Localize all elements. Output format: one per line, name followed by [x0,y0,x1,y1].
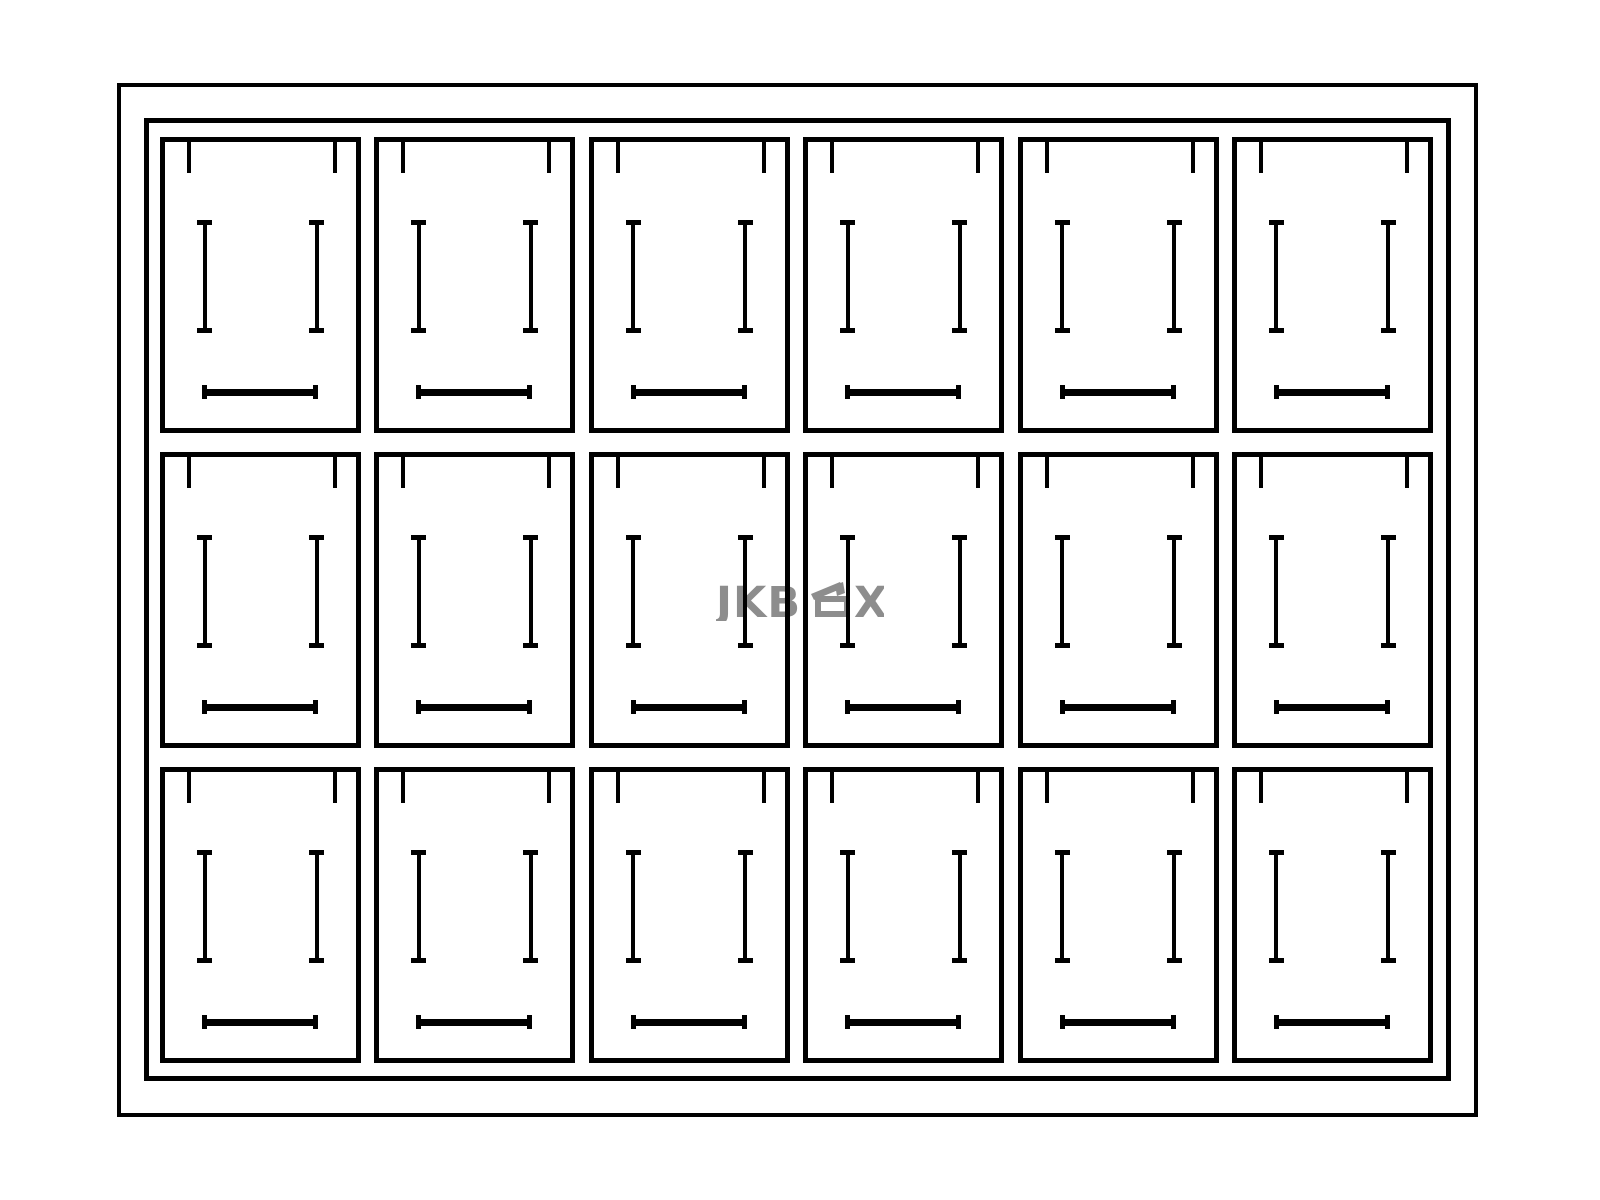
vertical-pin-left-icon [840,850,855,963]
horizontal-bar-icon [845,1015,961,1029]
top-notch-right-icon [333,457,337,488]
vertical-pin-left-icon [626,220,641,333]
top-notch-left-icon [830,457,834,488]
top-notch-right-icon [1405,772,1409,803]
bar-cap-right [742,1015,747,1029]
top-notch-right-icon [1191,457,1195,488]
bar-stem [636,389,742,396]
pin-stem [1274,855,1278,958]
top-notch-left-icon [187,142,191,173]
horizontal-bar-icon [1060,700,1176,714]
pin-stem [631,225,635,328]
compartment [1018,137,1219,433]
compartment [803,452,1004,748]
top-notch-left-icon [1259,457,1263,488]
horizontal-bar-icon [1274,385,1390,399]
horizontal-bar-icon [416,700,532,714]
horizontal-bar-icon [1274,700,1390,714]
pin-stem [203,540,207,643]
compartment [803,137,1004,433]
pin-stem [1274,225,1278,328]
pin-stem [417,540,421,643]
pin-cap-bottom [309,328,324,333]
vertical-pin-right-icon [523,220,538,333]
compartment [374,767,575,1063]
bar-stem [421,389,527,396]
top-notch-left-icon [1259,772,1263,803]
pin-stem [1172,855,1176,958]
pin-cap-bottom [840,643,855,648]
top-notch-left-icon [616,142,620,173]
pin-stem [846,855,850,958]
pin-stem [203,225,207,328]
vertical-pin-left-icon [1055,850,1070,963]
horizontal-bar-icon [845,700,961,714]
horizontal-bar-icon [631,700,747,714]
vertical-pin-left-icon [840,220,855,333]
top-notch-right-icon [762,142,766,173]
horizontal-bar-icon [845,385,961,399]
pin-stem [846,225,850,328]
pin-cap-bottom [197,958,212,963]
bar-stem [1065,1019,1171,1026]
top-notch-right-icon [1405,142,1409,173]
vertical-pin-right-icon [1381,850,1396,963]
top-notch-left-icon [401,772,405,803]
pin-cap-bottom [738,328,753,333]
bar-cap-right [527,1015,532,1029]
pin-stem [1060,855,1064,958]
bar-stem [207,389,313,396]
pin-cap-bottom [1167,643,1182,648]
top-notch-left-icon [1045,142,1049,173]
bar-cap-right [742,385,747,399]
top-notch-right-icon [1191,772,1195,803]
vertical-pin-right-icon [309,850,324,963]
bar-cap-right [527,385,532,399]
horizontal-bar-icon [631,385,747,399]
pin-cap-bottom [952,328,967,333]
horizontal-bar-icon [1060,385,1176,399]
pin-cap-bottom [1167,328,1182,333]
top-notch-left-icon [187,457,191,488]
vertical-pin-right-icon [1167,535,1182,648]
diagram-canvas: JKB X [0,0,1600,1200]
vertical-pin-right-icon [952,850,967,963]
pin-stem [1172,225,1176,328]
bar-cap-right [313,1015,318,1029]
bar-stem [1279,389,1385,396]
top-notch-right-icon [547,142,551,173]
bar-stem [207,1019,313,1026]
pin-cap-bottom [1167,958,1182,963]
pin-cap-bottom [1055,328,1070,333]
bar-stem [207,704,313,711]
pin-cap-bottom [952,958,967,963]
top-notch-left-icon [1045,772,1049,803]
pin-cap-bottom [1269,328,1284,333]
vertical-pin-right-icon [1167,850,1182,963]
bar-cap-right [313,700,318,714]
pin-stem [417,855,421,958]
pin-cap-bottom [197,643,212,648]
vertical-pin-left-icon [626,850,641,963]
horizontal-bar-icon [202,700,318,714]
pin-stem [1386,540,1390,643]
vertical-pin-right-icon [738,535,753,648]
bar-cap-right [1385,1015,1390,1029]
compartment [589,767,790,1063]
top-notch-right-icon [976,457,980,488]
pin-cap-bottom [1269,643,1284,648]
pin-cap-bottom [411,643,426,648]
compartment-grid [160,137,1433,1063]
compartment [374,137,575,433]
top-notch-right-icon [762,772,766,803]
bar-cap-right [313,385,318,399]
vertical-pin-left-icon [1055,535,1070,648]
vertical-pin-right-icon [1381,220,1396,333]
vertical-pin-right-icon [523,535,538,648]
pin-stem [958,225,962,328]
bar-stem [421,704,527,711]
vertical-pin-right-icon [523,850,538,963]
bar-stem [1279,1019,1385,1026]
compartment [1232,767,1433,1063]
compartment [803,767,1004,1063]
pin-stem [417,225,421,328]
top-notch-left-icon [616,457,620,488]
bar-stem [421,1019,527,1026]
compartment [160,137,361,433]
pin-cap-bottom [1381,643,1396,648]
pin-cap-bottom [197,328,212,333]
bar-cap-right [956,385,961,399]
vertical-pin-left-icon [197,535,212,648]
pin-stem [315,540,319,643]
bar-cap-right [742,700,747,714]
vertical-pin-right-icon [1167,220,1182,333]
vertical-pin-right-icon [738,850,753,963]
pin-cap-bottom [1055,643,1070,648]
horizontal-bar-icon [1274,1015,1390,1029]
vertical-pin-right-icon [309,535,324,648]
pin-cap-bottom [626,643,641,648]
pin-cap-bottom [309,958,324,963]
top-notch-right-icon [1191,142,1195,173]
vertical-pin-left-icon [1269,850,1284,963]
pin-stem [631,540,635,643]
bar-cap-right [1171,385,1176,399]
compartment [1232,452,1433,748]
pin-stem [631,855,635,958]
pin-cap-bottom [1381,958,1396,963]
horizontal-bar-icon [202,385,318,399]
bar-cap-right [1385,700,1390,714]
pin-cap-bottom [411,328,426,333]
bar-cap-right [1171,1015,1176,1029]
horizontal-bar-icon [416,1015,532,1029]
top-notch-left-icon [1045,457,1049,488]
pin-stem [846,540,850,643]
pin-cap-bottom [1055,958,1070,963]
pin-cap-bottom [309,643,324,648]
pin-cap-bottom [952,643,967,648]
bar-cap-right [1171,700,1176,714]
top-notch-right-icon [1405,457,1409,488]
vertical-pin-right-icon [738,220,753,333]
bar-cap-right [956,1015,961,1029]
pin-stem [958,855,962,958]
bar-stem [636,704,742,711]
top-notch-left-icon [616,772,620,803]
top-notch-right-icon [333,142,337,173]
pin-cap-bottom [523,328,538,333]
horizontal-bar-icon [202,1015,318,1029]
pin-stem [1386,225,1390,328]
vertical-pin-left-icon [1269,220,1284,333]
top-notch-left-icon [830,772,834,803]
pin-stem [529,540,533,643]
vertical-pin-left-icon [197,220,212,333]
compartment [160,452,361,748]
vertical-pin-left-icon [626,535,641,648]
bar-stem [1065,389,1171,396]
pin-cap-bottom [411,958,426,963]
pin-stem [1172,540,1176,643]
pin-stem [315,855,319,958]
top-notch-right-icon [333,772,337,803]
pin-cap-bottom [523,643,538,648]
pin-stem [315,225,319,328]
vertical-pin-right-icon [952,220,967,333]
top-notch-right-icon [976,142,980,173]
top-notch-right-icon [547,457,551,488]
top-notch-left-icon [401,457,405,488]
vertical-pin-left-icon [411,535,426,648]
pin-stem [743,855,747,958]
compartment [589,137,790,433]
pin-stem [1274,540,1278,643]
bar-cap-right [1385,385,1390,399]
horizontal-bar-icon [1060,1015,1176,1029]
compartment [1232,137,1433,433]
bar-cap-right [527,700,532,714]
pin-stem [1060,540,1064,643]
top-notch-right-icon [762,457,766,488]
pin-stem [1060,225,1064,328]
vertical-pin-right-icon [1381,535,1396,648]
pin-cap-bottom [738,958,753,963]
vertical-pin-left-icon [1269,535,1284,648]
vertical-pin-right-icon [952,535,967,648]
bar-stem [1279,704,1385,711]
vertical-pin-left-icon [1055,220,1070,333]
vertical-pin-right-icon [309,220,324,333]
bar-stem [636,1019,742,1026]
pin-stem [203,855,207,958]
top-notch-left-icon [830,142,834,173]
vertical-pin-left-icon [840,535,855,648]
top-notch-right-icon [976,772,980,803]
pin-stem [743,225,747,328]
pin-cap-bottom [626,958,641,963]
top-notch-left-icon [1259,142,1263,173]
top-notch-left-icon [187,772,191,803]
pin-stem [529,225,533,328]
compartment [374,452,575,748]
pin-stem [743,540,747,643]
compartment [1018,452,1219,748]
vertical-pin-left-icon [197,850,212,963]
compartment [589,452,790,748]
horizontal-bar-icon [416,385,532,399]
pin-stem [958,540,962,643]
bar-stem [1065,704,1171,711]
compartment [1018,767,1219,1063]
horizontal-bar-icon [631,1015,747,1029]
bar-stem [850,389,956,396]
top-notch-left-icon [401,142,405,173]
compartment [160,767,361,1063]
pin-stem [529,855,533,958]
pin-cap-bottom [840,328,855,333]
top-notch-right-icon [547,772,551,803]
vertical-pin-left-icon [411,220,426,333]
pin-cap-bottom [523,958,538,963]
pin-stem [1386,855,1390,958]
vertical-pin-left-icon [411,850,426,963]
pin-cap-bottom [1381,328,1396,333]
pin-cap-bottom [840,958,855,963]
bar-stem [850,1019,956,1026]
pin-cap-bottom [1269,958,1284,963]
pin-cap-bottom [626,328,641,333]
bar-stem [850,704,956,711]
bar-cap-right [956,700,961,714]
pin-cap-bottom [738,643,753,648]
